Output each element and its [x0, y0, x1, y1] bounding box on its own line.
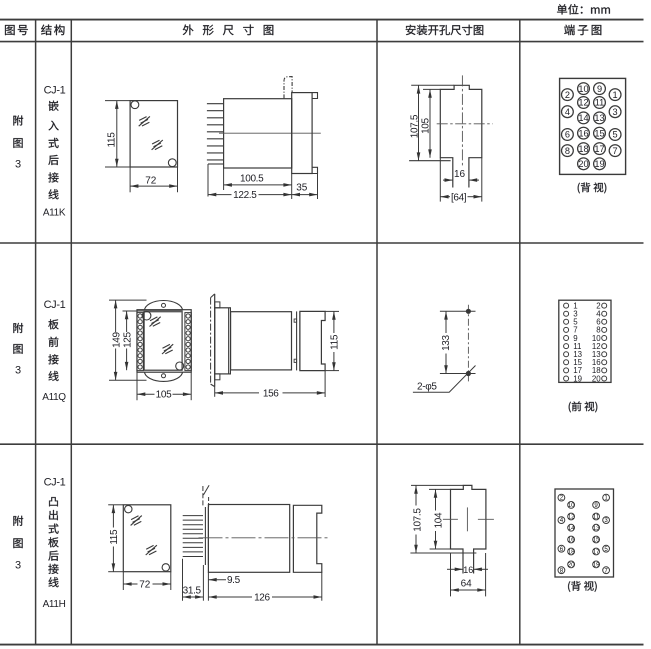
svg-text:3: 3: [15, 559, 21, 571]
svg-text:17: 17: [594, 144, 604, 154]
svg-text:3: 3: [15, 365, 21, 377]
svg-text:6: 6: [560, 546, 564, 553]
svg-text:19: 19: [573, 374, 582, 383]
svg-text:16: 16: [463, 565, 473, 575]
svg-text:2: 2: [560, 495, 564, 502]
svg-text:CJ-1: CJ-1: [44, 84, 66, 96]
svg-text:12: 12: [578, 98, 588, 108]
svg-text:19: 19: [593, 562, 600, 569]
svg-text:7: 7: [613, 146, 618, 156]
svg-text:18: 18: [578, 144, 588, 154]
svg-text:156: 156: [263, 388, 279, 399]
svg-text:3: 3: [613, 107, 618, 117]
svg-text:115: 115: [330, 334, 341, 350]
svg-text:31.5: 31.5: [183, 586, 202, 597]
svg-text:125: 125: [123, 331, 134, 347]
svg-text:107.5: 107.5: [412, 508, 423, 532]
svg-text:14: 14: [578, 113, 588, 123]
svg-text:3: 3: [15, 158, 21, 170]
svg-text:16: 16: [568, 537, 575, 544]
svg-text:16: 16: [454, 169, 466, 180]
svg-text:115: 115: [106, 132, 117, 148]
svg-text:1: 1: [613, 90, 618, 100]
svg-text:20: 20: [578, 159, 588, 169]
svg-text:A11K: A11K: [43, 208, 66, 219]
svg-text:18: 18: [568, 549, 575, 556]
svg-text:72: 72: [139, 580, 151, 591]
svg-text:149: 149: [111, 331, 122, 347]
svg-text:[64]: [64]: [451, 192, 467, 203]
svg-text:15: 15: [593, 537, 600, 544]
svg-text:133: 133: [441, 334, 452, 350]
svg-text:12: 12: [568, 514, 575, 521]
svg-text:8: 8: [565, 146, 570, 156]
svg-text:A11Q: A11Q: [42, 392, 66, 403]
svg-text:35: 35: [296, 182, 308, 193]
svg-text:16: 16: [578, 128, 588, 138]
svg-text:10: 10: [568, 502, 575, 509]
svg-text:107.5: 107.5: [410, 114, 421, 138]
svg-text:9: 9: [597, 84, 602, 94]
svg-text:105: 105: [156, 390, 172, 401]
svg-text:2-φ5: 2-φ5: [417, 382, 437, 393]
svg-text:CJ-1: CJ-1: [44, 476, 66, 488]
svg-text:15: 15: [594, 128, 604, 138]
svg-text:9.5: 9.5: [227, 575, 241, 586]
svg-text:13: 13: [594, 113, 604, 123]
svg-text:20: 20: [592, 374, 601, 383]
svg-text:8: 8: [560, 567, 564, 574]
svg-text:19: 19: [594, 159, 604, 169]
svg-text:4: 4: [565, 107, 570, 117]
svg-text:5: 5: [613, 130, 618, 140]
svg-text:4: 4: [560, 517, 564, 524]
svg-text:2: 2: [565, 90, 570, 100]
svg-text:64: 64: [461, 579, 473, 590]
svg-text:17: 17: [593, 549, 600, 556]
svg-text:105: 105: [420, 117, 431, 133]
svg-text:72: 72: [145, 176, 157, 187]
svg-text:122.5: 122.5: [233, 190, 257, 201]
svg-text:A11H: A11H: [43, 599, 66, 610]
svg-text:100.5: 100.5: [240, 173, 264, 184]
svg-text:115: 115: [109, 529, 120, 545]
svg-text:11: 11: [595, 98, 605, 108]
svg-text:11: 11: [593, 514, 600, 521]
svg-text:104: 104: [433, 512, 444, 528]
svg-text:6: 6: [565, 130, 570, 140]
svg-text:14: 14: [568, 525, 575, 532]
svg-text:20: 20: [568, 562, 575, 569]
svg-text:126: 126: [254, 592, 270, 603]
svg-text:CJ-1: CJ-1: [44, 299, 66, 311]
svg-text:10: 10: [578, 84, 588, 94]
svg-text:13: 13: [593, 525, 600, 532]
